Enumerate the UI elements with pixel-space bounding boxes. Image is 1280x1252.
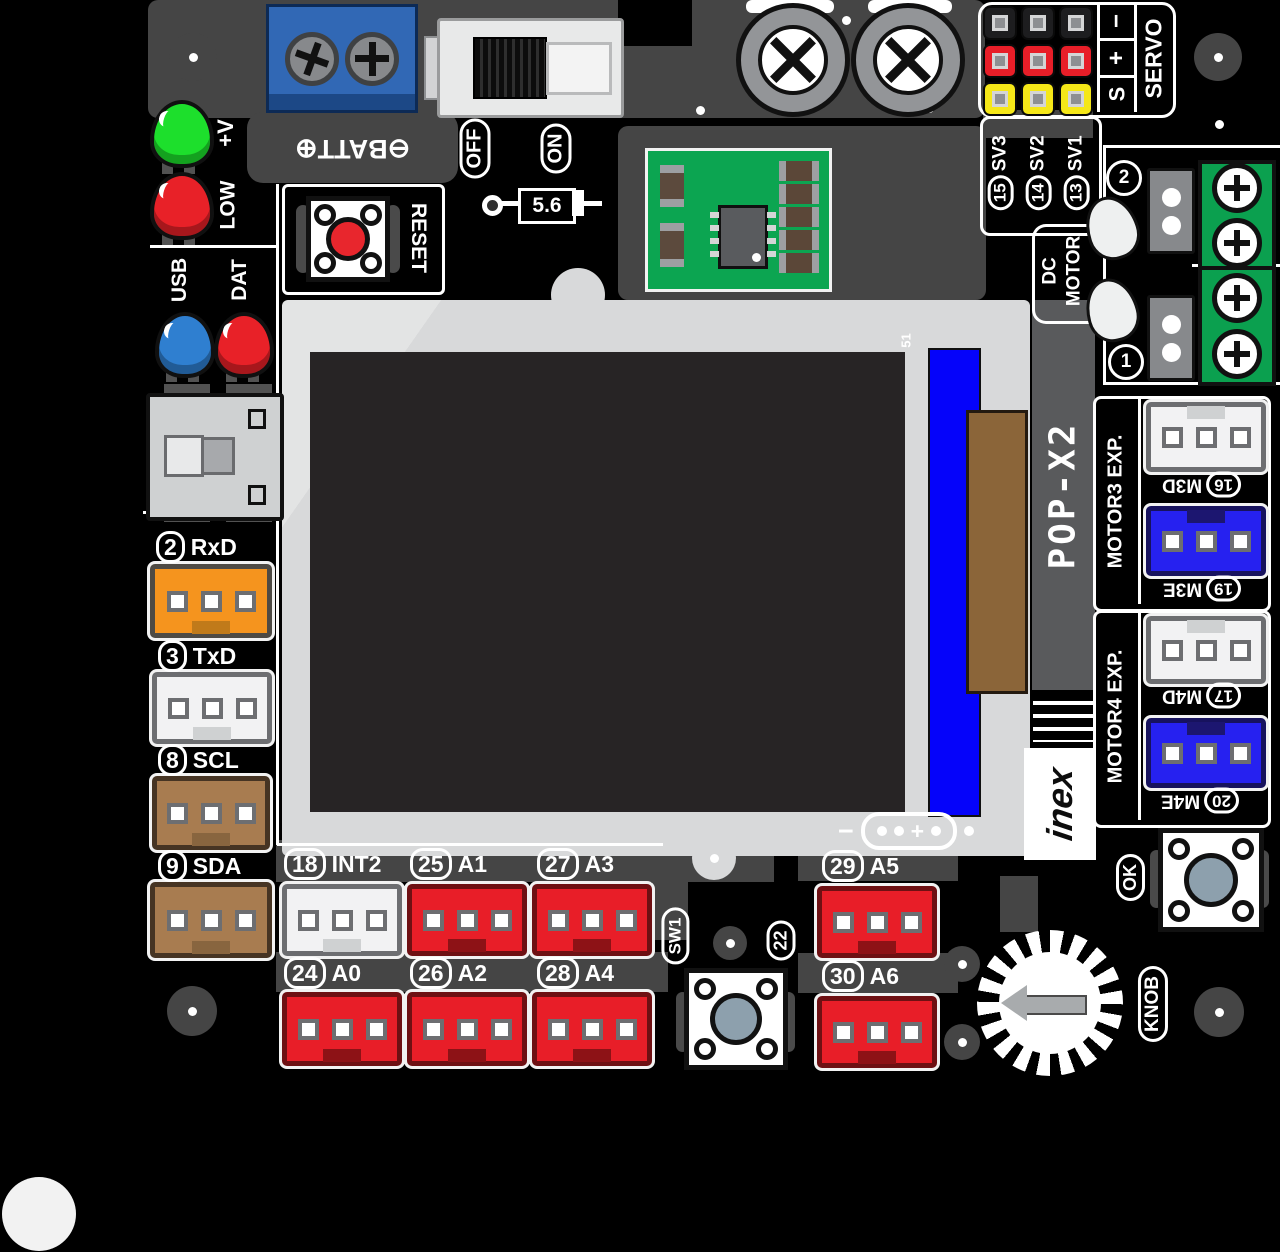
a4-label: 28A4 bbox=[537, 957, 614, 989]
usb-b-connector bbox=[146, 393, 284, 521]
servo-pin-vcc bbox=[1021, 44, 1055, 78]
lcd-screen bbox=[310, 352, 905, 812]
electrolytic-capacitor bbox=[851, 3, 965, 117]
sw1-label: SW1 bbox=[654, 908, 696, 964]
servo-plus-label: + bbox=[1100, 41, 1134, 75]
motor4-title: MOTOR4 EXP. bbox=[1094, 612, 1138, 820]
sda-port-label: 9SDA bbox=[158, 850, 241, 882]
mount-hole bbox=[167, 986, 217, 1036]
servo-sig-label: S bbox=[1100, 78, 1134, 110]
a1-port bbox=[407, 884, 527, 956]
rxd-port-label: 2RxD bbox=[156, 531, 237, 563]
scl-port bbox=[152, 776, 270, 850]
m4d-port bbox=[1146, 616, 1266, 684]
servo-pin-vcc bbox=[983, 44, 1017, 78]
switch-on-label: ON bbox=[534, 115, 578, 181]
a2-port bbox=[407, 992, 527, 1066]
ref-51-label: 51 bbox=[896, 326, 916, 354]
reset-label: RESET bbox=[400, 194, 436, 282]
m4e-label: 20M4E bbox=[1144, 786, 1256, 816]
terminal-screw bbox=[345, 32, 399, 86]
a6-label: 30A6 bbox=[822, 960, 899, 992]
terminal-screw bbox=[285, 32, 339, 86]
sda-port bbox=[150, 882, 272, 958]
pcb-gap bbox=[618, 0, 692, 46]
vplus-led-label: +V bbox=[206, 104, 246, 162]
mount-hole bbox=[944, 1024, 980, 1060]
motor3-title: MOTOR3 EXP. bbox=[1094, 398, 1138, 604]
zener-lead bbox=[498, 201, 520, 206]
smd-resistor bbox=[660, 165, 684, 207]
servo-ch-sv3: 15SV3 bbox=[982, 118, 1018, 228]
mount-hole bbox=[169, 33, 217, 81]
model-name-bar: POP-X2 bbox=[1032, 300, 1095, 690]
knob-dial bbox=[977, 930, 1123, 1076]
flex-stripes bbox=[1033, 692, 1094, 742]
int2-label: 18INT2 bbox=[284, 848, 381, 880]
dat-led-label: DAT bbox=[220, 248, 260, 312]
zener-band bbox=[572, 190, 584, 216]
sw1-pin-label: 22 bbox=[760, 914, 802, 966]
piezo-plus: + bbox=[911, 818, 924, 845]
via-dot bbox=[696, 106, 705, 115]
ok-button-cap bbox=[1184, 853, 1238, 907]
a5-port bbox=[817, 886, 937, 958]
usb-led-label: USB bbox=[160, 248, 200, 312]
smd-resistor bbox=[660, 223, 684, 267]
inex-logo: inex bbox=[1024, 748, 1096, 860]
servo-ch-sv2: 14SV2 bbox=[1020, 118, 1056, 228]
smd-capacitor bbox=[779, 230, 819, 250]
m3e-port bbox=[1146, 506, 1266, 576]
mount-hole bbox=[713, 926, 747, 960]
pcb-board-illustration: ⊖BATT⊕ OFF ON 5.6 RESET bbox=[0, 0, 1280, 1252]
a0-port bbox=[282, 992, 402, 1066]
usb-led bbox=[155, 312, 215, 378]
m4e-port bbox=[1146, 718, 1266, 788]
servo-ch-sv1: 13SV1 bbox=[1058, 118, 1094, 228]
ok-label: OK bbox=[1110, 850, 1150, 904]
switch-slider bbox=[473, 37, 547, 99]
servo-pin-gnd bbox=[1059, 6, 1093, 40]
batt-polarity-label: ⊖BATT⊕ bbox=[258, 120, 448, 176]
m3d-port bbox=[1146, 402, 1266, 472]
a4-port bbox=[532, 992, 652, 1066]
mount-hole bbox=[1194, 33, 1242, 81]
knob-label: KNOB bbox=[1132, 958, 1174, 1050]
a0-label: 24A0 bbox=[284, 957, 361, 989]
scl-port-label: 8SCL bbox=[158, 744, 239, 776]
int2-port bbox=[282, 884, 402, 956]
low-led-label: LOW bbox=[206, 172, 250, 238]
m4d-label: 17M4D bbox=[1146, 682, 1258, 710]
m3d-label: 16M3D bbox=[1146, 470, 1258, 500]
ic-chip bbox=[718, 205, 768, 269]
rxd-port bbox=[150, 564, 272, 638]
driver-module bbox=[645, 148, 832, 292]
sw1-button-cap bbox=[710, 993, 762, 1045]
smd-capacitor bbox=[779, 161, 819, 181]
smd-capacitor bbox=[779, 207, 819, 227]
ok-button bbox=[1158, 828, 1264, 932]
sw1-button bbox=[684, 968, 788, 1070]
dc-motor-title: DC MOTOR bbox=[1032, 224, 1092, 318]
divider-line bbox=[277, 843, 663, 846]
dat-led bbox=[214, 312, 274, 378]
m3e-label: 19M3E bbox=[1146, 574, 1258, 604]
a5-label: 29A5 bbox=[822, 850, 899, 882]
reset-button-cap bbox=[326, 217, 370, 261]
mount-hole bbox=[1194, 987, 1244, 1037]
mount-hole bbox=[944, 946, 980, 982]
switch-off-label: OFF bbox=[452, 115, 498, 181]
motor1-terminal bbox=[1198, 266, 1276, 386]
power-slide-switch bbox=[437, 18, 624, 118]
zener-5v6: 5.6 bbox=[518, 188, 576, 224]
servo-minus-label: − bbox=[1100, 4, 1134, 38]
a2-label: 26A2 bbox=[410, 957, 487, 989]
reset-button bbox=[306, 196, 390, 282]
smd-capacitor bbox=[779, 253, 819, 273]
low-battery-led bbox=[150, 172, 214, 240]
dc-motor1-number: 1 bbox=[1108, 344, 1144, 380]
piezo-footprint: − + bbox=[838, 812, 988, 850]
servo-pin-sig bbox=[983, 82, 1017, 116]
servo-pin-gnd bbox=[983, 6, 1017, 40]
switch-recess bbox=[546, 42, 612, 95]
motor1-pin-header bbox=[1147, 295, 1195, 381]
battery-screw-terminal bbox=[266, 4, 418, 113]
servo-pin-vcc bbox=[1059, 44, 1093, 78]
a1-label: 25A1 bbox=[410, 848, 487, 880]
knob-pointer-bar bbox=[1025, 995, 1087, 1015]
smd-capacitor bbox=[779, 184, 819, 204]
servo-pin-gnd bbox=[1021, 6, 1055, 40]
txd-port bbox=[152, 672, 272, 744]
zener-lead bbox=[584, 201, 602, 206]
knob-pointer-tip bbox=[1001, 985, 1027, 1021]
via-dot bbox=[1215, 120, 1224, 129]
batt-label-text: ⊖BATT⊕ bbox=[295, 133, 410, 164]
electrolytic-capacitor bbox=[736, 3, 850, 117]
servo-pin-sig bbox=[1059, 82, 1093, 116]
pcb-trace bbox=[1000, 876, 1038, 932]
corner-hole bbox=[2, 1177, 76, 1251]
servo-pin-sig bbox=[1021, 82, 1055, 116]
lcd-flex-brown bbox=[966, 410, 1028, 694]
bezel-bump-bottom bbox=[692, 836, 736, 880]
motor2-terminal bbox=[1198, 160, 1276, 270]
txd-port-label: 3TxD bbox=[158, 640, 236, 672]
a6-port bbox=[817, 996, 937, 1068]
dc-motor2-number: 2 bbox=[1106, 160, 1142, 196]
motor2-pin-header bbox=[1147, 168, 1195, 254]
piezo-minus: − bbox=[838, 816, 854, 847]
servo-title: SERVO bbox=[1136, 4, 1172, 112]
knob-hub bbox=[999, 952, 1101, 1054]
a3-port bbox=[532, 884, 652, 956]
a3-label: 27A3 bbox=[537, 848, 614, 880]
via-dot bbox=[842, 16, 851, 25]
